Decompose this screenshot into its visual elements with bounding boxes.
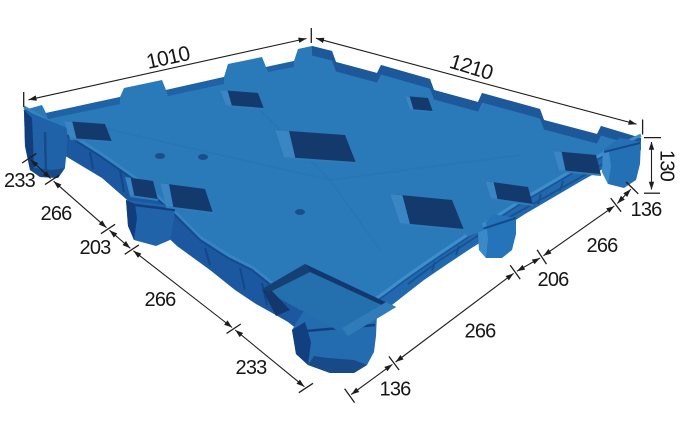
svg-text:266: 266 — [587, 235, 619, 257]
svg-text:266: 266 — [145, 289, 177, 311]
svg-text:233: 233 — [4, 170, 36, 192]
svg-text:136: 136 — [631, 199, 663, 221]
svg-text:136: 136 — [380, 379, 412, 401]
svg-text:203: 203 — [80, 237, 112, 259]
svg-text:233: 233 — [236, 357, 268, 379]
svg-text:130: 130 — [656, 150, 678, 182]
svg-text:266: 266 — [465, 321, 497, 343]
svg-text:206: 206 — [538, 269, 570, 291]
svg-text:266: 266 — [41, 203, 73, 225]
